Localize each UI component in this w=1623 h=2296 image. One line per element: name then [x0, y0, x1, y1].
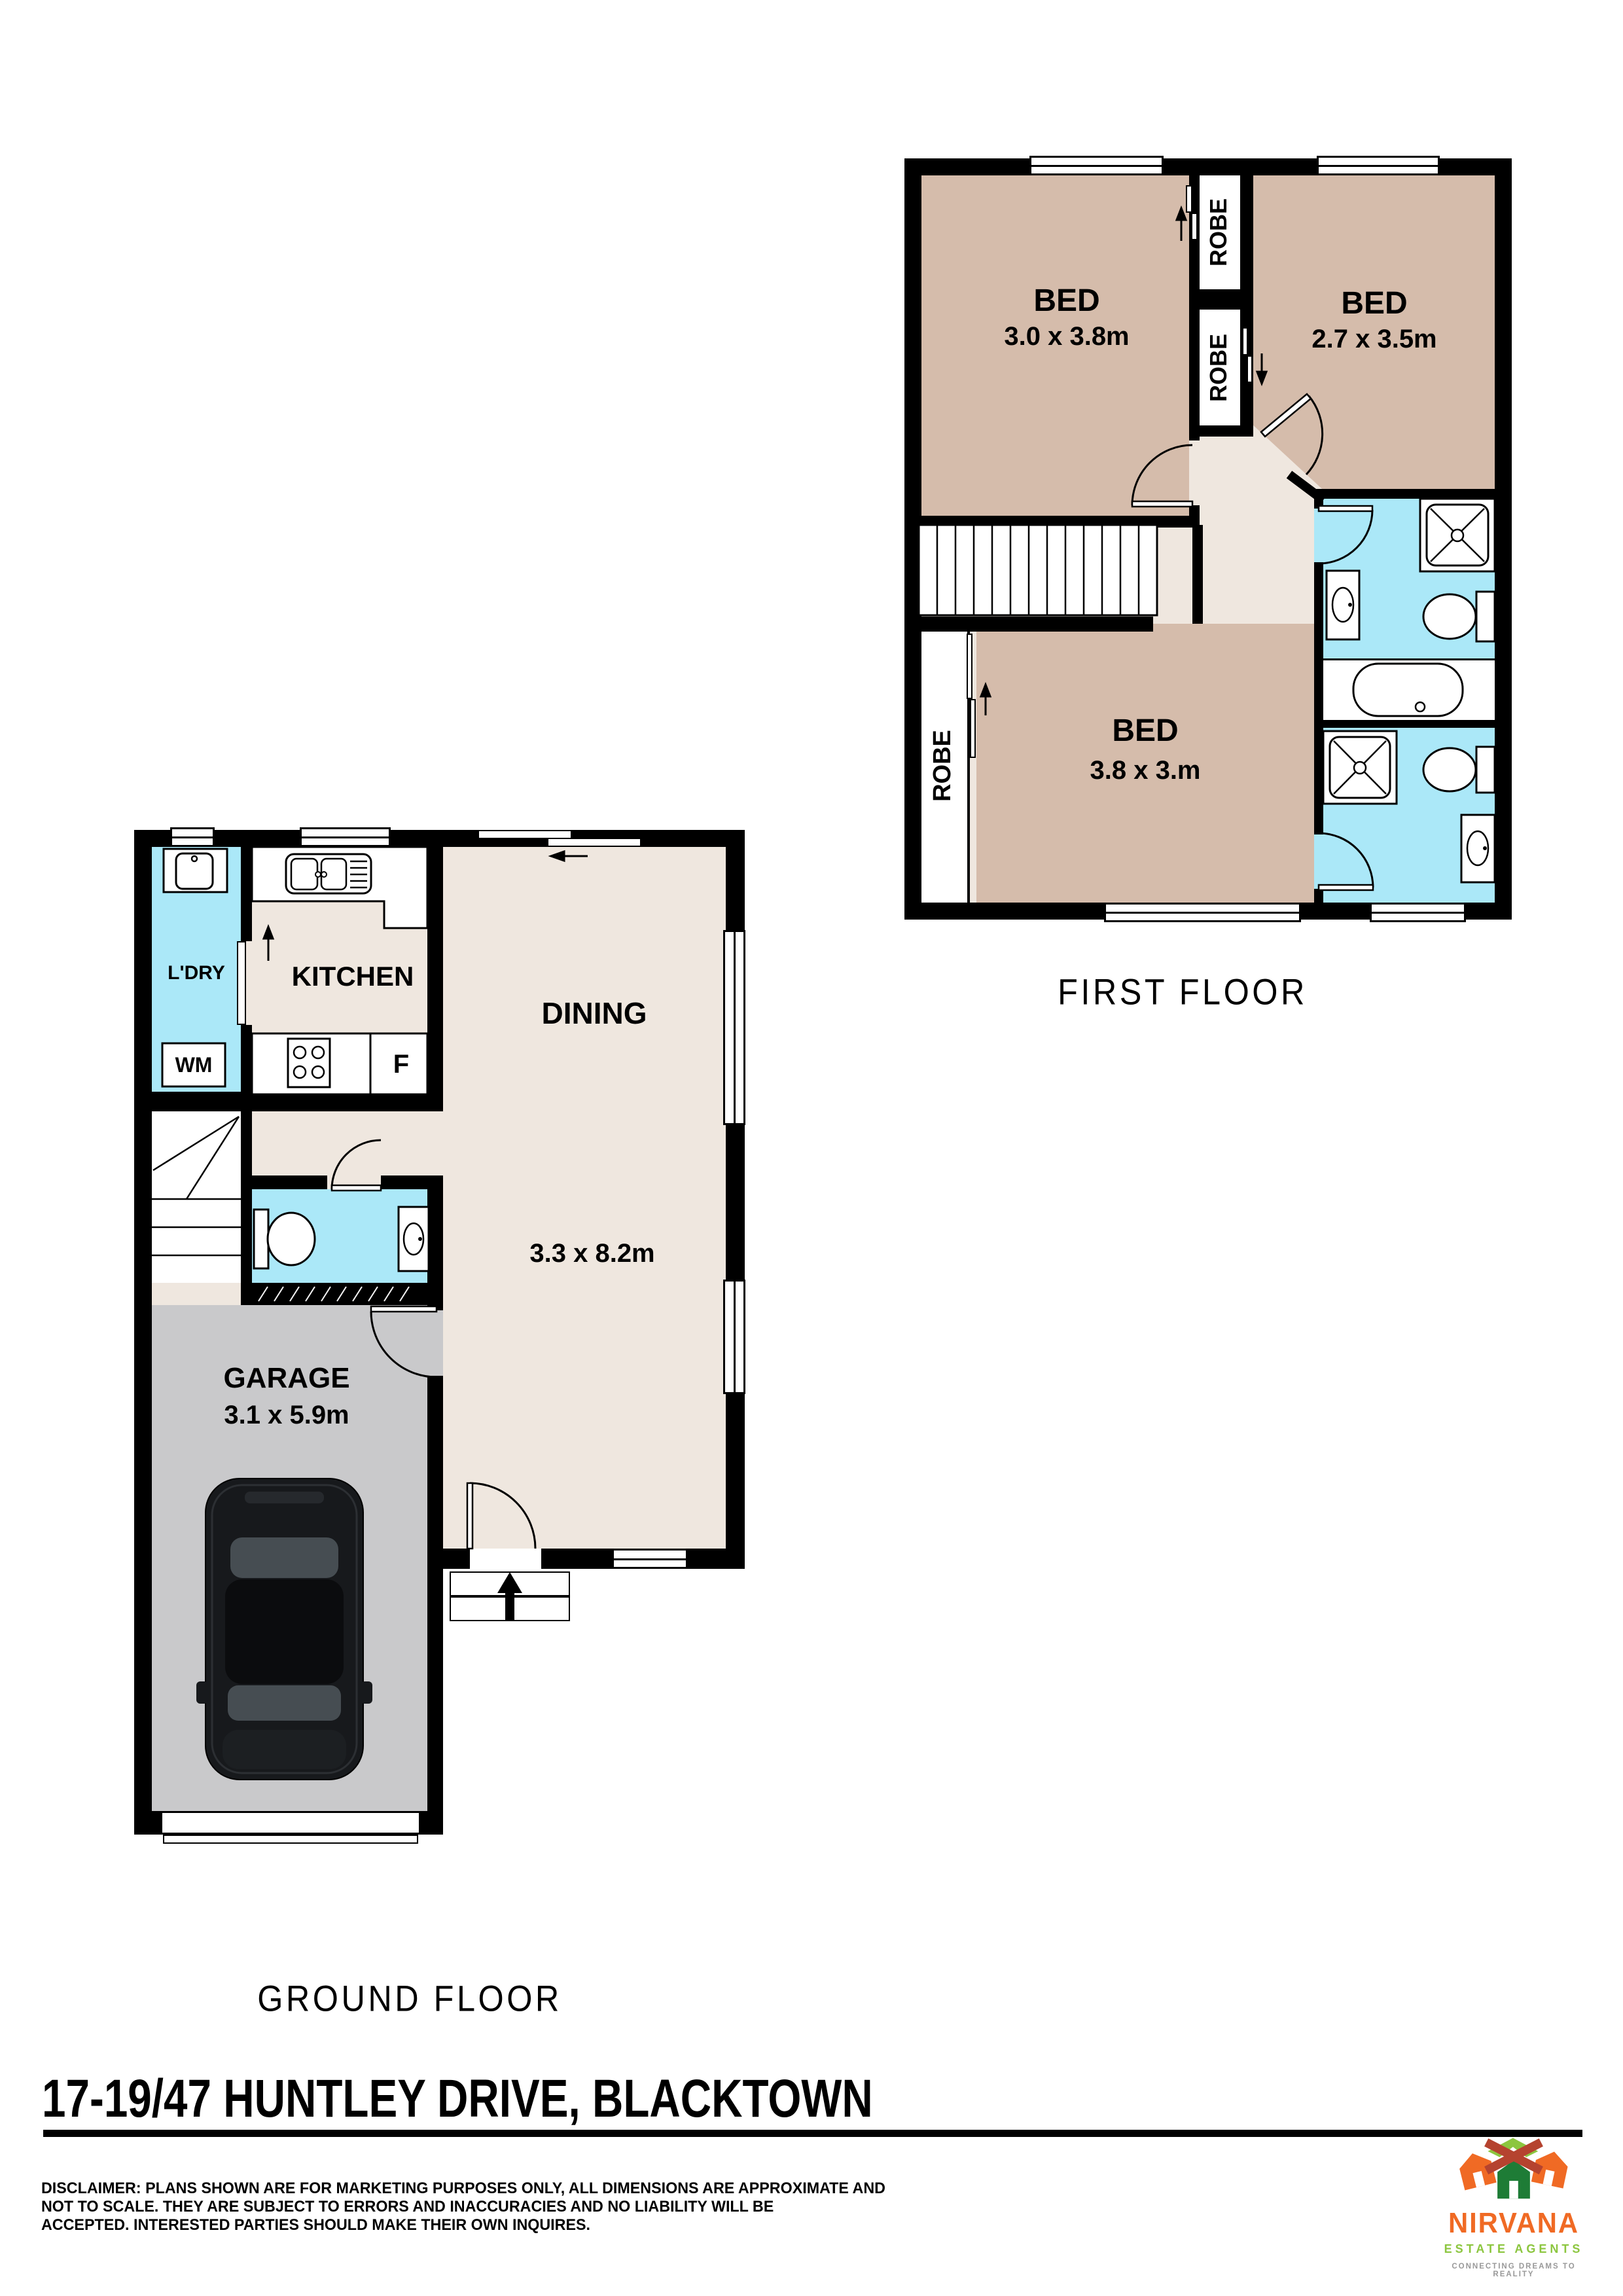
first-floor-title: FIRST FLOOR: [1058, 971, 1308, 1013]
door-bathroom: [1319, 506, 1372, 564]
bed2-dims: 2.7 x 3.5m: [1311, 326, 1436, 352]
vanity: [399, 1207, 429, 1271]
bed3-label: BED: [1112, 715, 1178, 747]
dining-dims: 3.3 x 8.2m: [529, 1240, 654, 1266]
disclaimer-line: DISCLAIMER: PLANS SHOWN ARE FOR MARKETIN…: [41, 2179, 885, 2198]
dining-label: DINING: [542, 998, 647, 1028]
stair-arrow-icon: [264, 927, 273, 961]
door-entry: [467, 1483, 535, 1549]
robe-arrow-icon: [981, 208, 1266, 715]
nirvana-houses-icon: [1458, 2135, 1569, 2203]
disclaimer-line: NOT TO SCALE. THEY ARE SUBJECT TO ERRORS…: [41, 2198, 885, 2216]
floorplan-sheet: BED 3.0 x 3.8m BED 2.7 x 3.5m BED 3.8 x …: [0, 0, 1623, 2296]
ground-floor-symbols: [134, 830, 745, 1877]
bed1-dims: 3.0 x 3.8m: [1004, 323, 1129, 350]
toilet: [1423, 747, 1495, 793]
toilet: [1423, 592, 1495, 641]
shower: [1420, 499, 1495, 571]
shower: [1323, 731, 1397, 804]
fridge-label: F: [393, 1051, 409, 1077]
bed3-dims: 3.8 x 3.m: [1090, 757, 1200, 783]
disclaimer-text: DISCLAIMER: PLANS SHOWN ARE FOR MARKETIN…: [41, 2179, 885, 2234]
stairs-up: [919, 525, 1157, 615]
entry-arrow-icon: [497, 1572, 522, 1621]
stove: [288, 1039, 330, 1087]
hatched-wall: [259, 1287, 409, 1301]
robe3-label: ROBE: [930, 730, 955, 802]
first-floor-plan: BED 3.0 x 3.8m BED 2.7 x 3.5m BED 3.8 x …: [904, 158, 1512, 920]
logo-tagline: CONNECTING DREAMS TO REALITY: [1438, 2263, 1589, 2278]
kitchen-label: KITCHEN: [292, 963, 414, 990]
robe1-label: ROBE: [1207, 198, 1230, 266]
door-bed2: [1261, 394, 1323, 500]
vanity: [1461, 815, 1495, 882]
door-bed1: [1132, 445, 1192, 507]
logo-brand: NIRVANA: [1442, 2207, 1586, 2240]
ground-floor-title: GROUND FLOOR: [257, 1977, 562, 2020]
sliding-arrow-icon: [551, 852, 588, 861]
laundry-tub: [164, 849, 227, 892]
bathtub: [1353, 664, 1463, 716]
kitchen-sink: [286, 854, 371, 893]
vanity: [1327, 571, 1359, 639]
first-floor-symbols: [904, 158, 1512, 920]
address-underline: [43, 2130, 1582, 2137]
car: [196, 1479, 372, 1780]
agency-logo: NIRVANA ESTATE AGENTS CONNECTING DREAMS …: [1438, 2135, 1589, 2278]
bed1-label: BED: [1033, 285, 1099, 317]
garage-label: GARAGE: [223, 1364, 349, 1393]
property-address: 17-19/47 HUNTLEY DRIVE, BLACKTOWN: [42, 2068, 873, 2130]
garage-dims: 3.1 x 5.9m: [224, 1402, 349, 1428]
logo-subtitle: ESTATE AGENTS: [1438, 2242, 1589, 2256]
stairs-down: [152, 1111, 241, 1283]
laundry-label: L'DRY: [168, 963, 225, 983]
bed2-label: BED: [1341, 288, 1407, 319]
door-garage: [371, 1306, 437, 1377]
washing-machine-label: WM: [175, 1054, 213, 1075]
toilet: [254, 1210, 315, 1268]
disclaimer-line: ACCEPTED. INTERESTED PARTIES SHOULD MAKE…: [41, 2216, 885, 2234]
ground-floor-plan: L'DRY WM KITCHEN F DINING 3.3 x 8.2m GAR…: [134, 830, 745, 1877]
door-powder: [332, 1140, 381, 1191]
robe2-label: ROBE: [1207, 334, 1230, 402]
door-ensuite: [1319, 833, 1373, 890]
